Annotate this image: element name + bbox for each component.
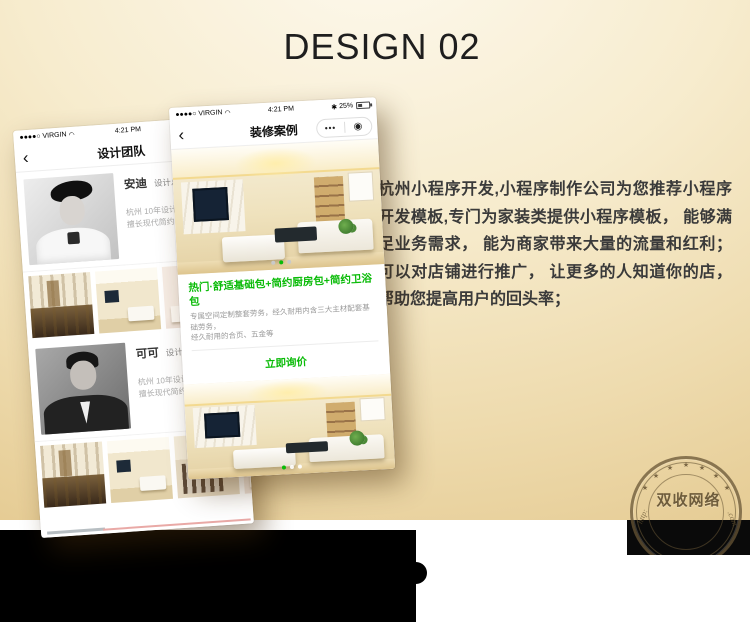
designer-name: 安迪 <box>123 175 147 193</box>
nav-title: 装修案例 <box>249 121 298 140</box>
portfolio-thumb[interactable] <box>107 437 173 503</box>
carrier-signal: ●●●●○ VIRGIN <box>175 109 223 118</box>
battery-percent: 25% <box>339 102 353 110</box>
black-ribbon <box>0 530 416 622</box>
case-carousel-photo[interactable] <box>171 139 384 275</box>
page-title: DESIGN 02 <box>0 26 750 68</box>
case-carousel-photo[interactable] <box>183 373 395 479</box>
star-icon: ★ <box>683 461 689 469</box>
phone-mockup-decor-cases: ●●●●○ VIRGIN ◠ 4:21 PM ✱ 25% ‹ 装修案例 ••• … <box>169 97 395 479</box>
nav-title: 设计团队 <box>97 141 146 161</box>
stamp-brand-text: 双收网络 <box>627 489 750 510</box>
dot-icon[interactable] <box>271 261 275 265</box>
star-icon: ★ <box>713 472 719 480</box>
close-circle-icon[interactable]: ◉ <box>344 120 371 132</box>
star-icon: ★ <box>667 464 673 472</box>
watermark-stamp: ★ ★ ★ ★ ★ ★ ★ 双收网络 http: .com <box>627 440 750 555</box>
inquiry-button[interactable]: 立即询价 <box>265 356 308 370</box>
footer-accent-gray <box>47 528 105 535</box>
wifi-icon: ◠ <box>224 108 231 116</box>
star-icon: ★ <box>699 464 705 472</box>
star-icon: ★ <box>653 472 659 480</box>
ribbon-arrow-tip <box>405 562 427 584</box>
seal-inner-ring-icon <box>648 474 724 550</box>
designer-photo <box>23 173 119 265</box>
portfolio-thumb[interactable] <box>40 442 106 508</box>
clock: 4:21 PM <box>268 105 294 113</box>
more-dots-icon[interactable]: ••• <box>317 123 344 133</box>
dot-icon-active[interactable] <box>281 465 285 469</box>
battery-icon <box>356 101 370 109</box>
dot-icon[interactable] <box>289 465 293 469</box>
dot-icon-active[interactable] <box>279 260 283 264</box>
back-chevron-icon[interactable]: ‹ <box>22 147 29 169</box>
portfolio-thumb[interactable] <box>28 272 94 338</box>
dot-icon[interactable] <box>297 465 301 469</box>
carrier-signal: ●●●●○ VIRGIN <box>19 131 67 141</box>
footer-accent-red <box>103 518 251 530</box>
clock: 4:21 PM <box>115 126 142 135</box>
bluetooth-icon: ✱ <box>331 103 337 111</box>
designer-photo <box>35 343 131 435</box>
description-paragraph: 杭州小程序开发,小程序制作公司为您推荐小程序开发模板,专门为家装类提供小程序模板… <box>378 176 732 314</box>
designer-name: 可可 <box>135 344 159 362</box>
wifi-icon: ◠ <box>68 130 75 138</box>
portfolio-thumb[interactable] <box>95 267 161 333</box>
dot-icon[interactable] <box>287 260 291 264</box>
back-chevron-icon[interactable]: ‹ <box>178 124 185 146</box>
package-card[interactable]: 热门·舒适基础包+简约厨房包+简约卫浴包 专属空间定制整套劳务，经久耐用内含三大… <box>178 264 390 384</box>
miniprogram-capsule[interactable]: ••• ◉ <box>316 116 373 138</box>
